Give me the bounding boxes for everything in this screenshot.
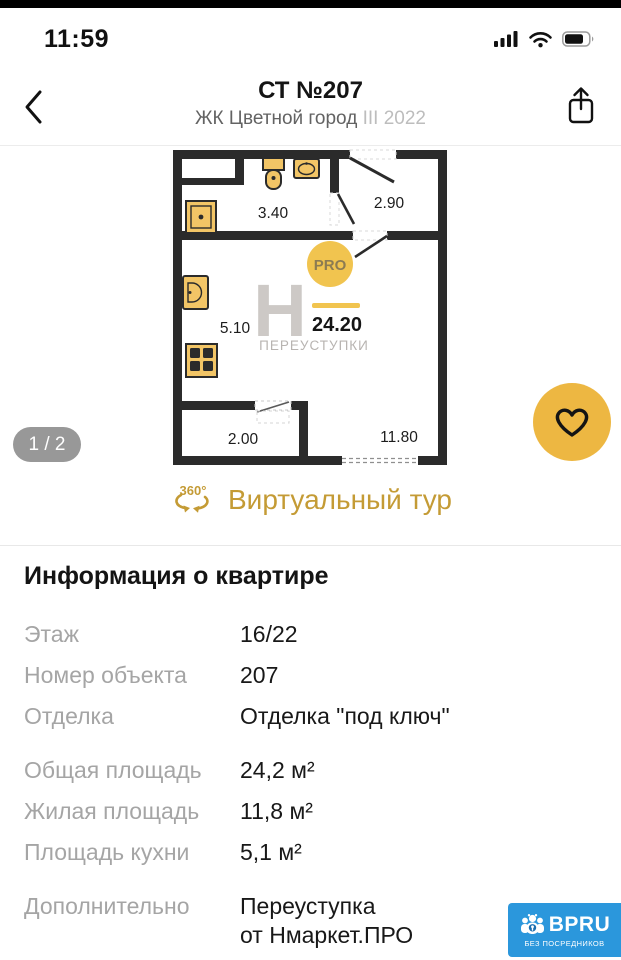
- bpru-tagline: БЕЗ ПОСРЕДНИКОВ: [524, 939, 604, 948]
- top-black-strip: [0, 0, 621, 8]
- photo-gallery: Н PRO 24.20 ПЕРЕУСТУПКИ 3.40 2.90 5.10 2…: [0, 146, 621, 546]
- page-title: СТ №207: [90, 76, 531, 106]
- watermark-text: ПЕРЕУСТУПКИ: [259, 338, 369, 353]
- row-group-gap: [24, 879, 597, 892]
- header-titles: СТ №207 ЖК Цветной город III 2022: [90, 76, 531, 131]
- bpru-people-lock-icon: [519, 912, 546, 937]
- share-button[interactable]: [563, 84, 599, 130]
- cellular-signal-icon: [494, 30, 519, 48]
- heart-icon: [552, 404, 592, 440]
- info-row-total-area: Общая площадь 24,2 м²: [24, 756, 597, 785]
- svg-text:360°: 360°: [180, 483, 207, 498]
- row-label: Этаж: [24, 620, 240, 648]
- page-subtitle: ЖК Цветной город III 2022: [90, 107, 531, 131]
- chevron-left-icon: [23, 89, 45, 125]
- row-label: Жилая площадь: [24, 797, 240, 825]
- room-label-living: 11.80: [380, 429, 418, 446]
- row-label: Номер объекта: [24, 661, 240, 689]
- total-area-label: 24.20: [312, 314, 362, 336]
- share-icon: [565, 85, 597, 127]
- status-icons: [494, 30, 595, 48]
- back-button[interactable]: [16, 88, 52, 128]
- row-value: 5,1 м²: [240, 838, 302, 867]
- row-label: Отделка: [24, 702, 240, 730]
- listing-screen: 11:59: [0, 0, 621, 960]
- room-label-kitchen: 5.10: [220, 320, 251, 337]
- pro-badge-label: PRO: [314, 257, 347, 274]
- room-label-bathroom: 3.40: [258, 205, 289, 222]
- row-label: Общая площадь: [24, 756, 240, 784]
- floorplan-image[interactable]: Н PRO 24.20 ПЕРЕУСТУПКИ 3.40 2.90 5.10 2…: [140, 147, 470, 477]
- nav-header: СТ №207 ЖК Цветной город III 2022: [0, 70, 621, 146]
- info-row-object-number: Номер объекта 207: [24, 661, 597, 690]
- room-label-balcony: 2.00: [228, 431, 259, 448]
- row-value: Переуступка от Нмаркет.ПРО: [240, 892, 413, 950]
- room-label-hall: 2.90: [374, 195, 405, 212]
- clock: 11:59: [44, 25, 109, 54]
- section-title: Информация о квартире: [24, 561, 597, 591]
- row-value: Отделка "под ключ": [240, 702, 450, 731]
- page-indicator: 1 / 2: [13, 427, 81, 462]
- virtual-tour-button[interactable]: 360° Виртуальный тур: [0, 476, 621, 524]
- status-bar: 11:59: [0, 8, 621, 70]
- row-label: Дополнительно: [24, 892, 240, 920]
- bpru-logo: BPRU БЕЗ ПОСРЕДНИКОВ: [508, 903, 621, 957]
- row-group-gap: [24, 743, 597, 756]
- wifi-icon: [528, 30, 553, 48]
- bpru-logo-row: BPRU: [519, 912, 611, 937]
- complex-name: ЖК Цветной город: [195, 108, 357, 129]
- completion-date: III 2022: [363, 108, 426, 129]
- row-value: 207: [240, 661, 278, 690]
- row-value: 16/22: [240, 620, 298, 649]
- favorite-button[interactable]: [533, 383, 611, 461]
- row-value: 11,8 м²: [240, 797, 313, 826]
- info-row-floor: Этаж 16/22: [24, 620, 597, 649]
- info-row-living-area: Жилая площадь 11,8 м²: [24, 797, 597, 826]
- info-row-finishing: Отделка Отделка "под ключ": [24, 702, 597, 731]
- info-row-kitchen-area: Площадь кухни 5,1 м²: [24, 838, 597, 867]
- 360-tour-icon: 360°: [169, 481, 215, 519]
- row-label: Площадь кухни: [24, 838, 240, 866]
- bpru-logo-text: BPRU: [549, 914, 611, 936]
- row-value: 24,2 м²: [240, 756, 315, 785]
- virtual-tour-label: Виртуальный тур: [228, 484, 452, 516]
- battery-icon: [562, 31, 595, 47]
- apartment-info-section: Информация о квартире Этаж 16/22 Номер о…: [0, 546, 621, 960]
